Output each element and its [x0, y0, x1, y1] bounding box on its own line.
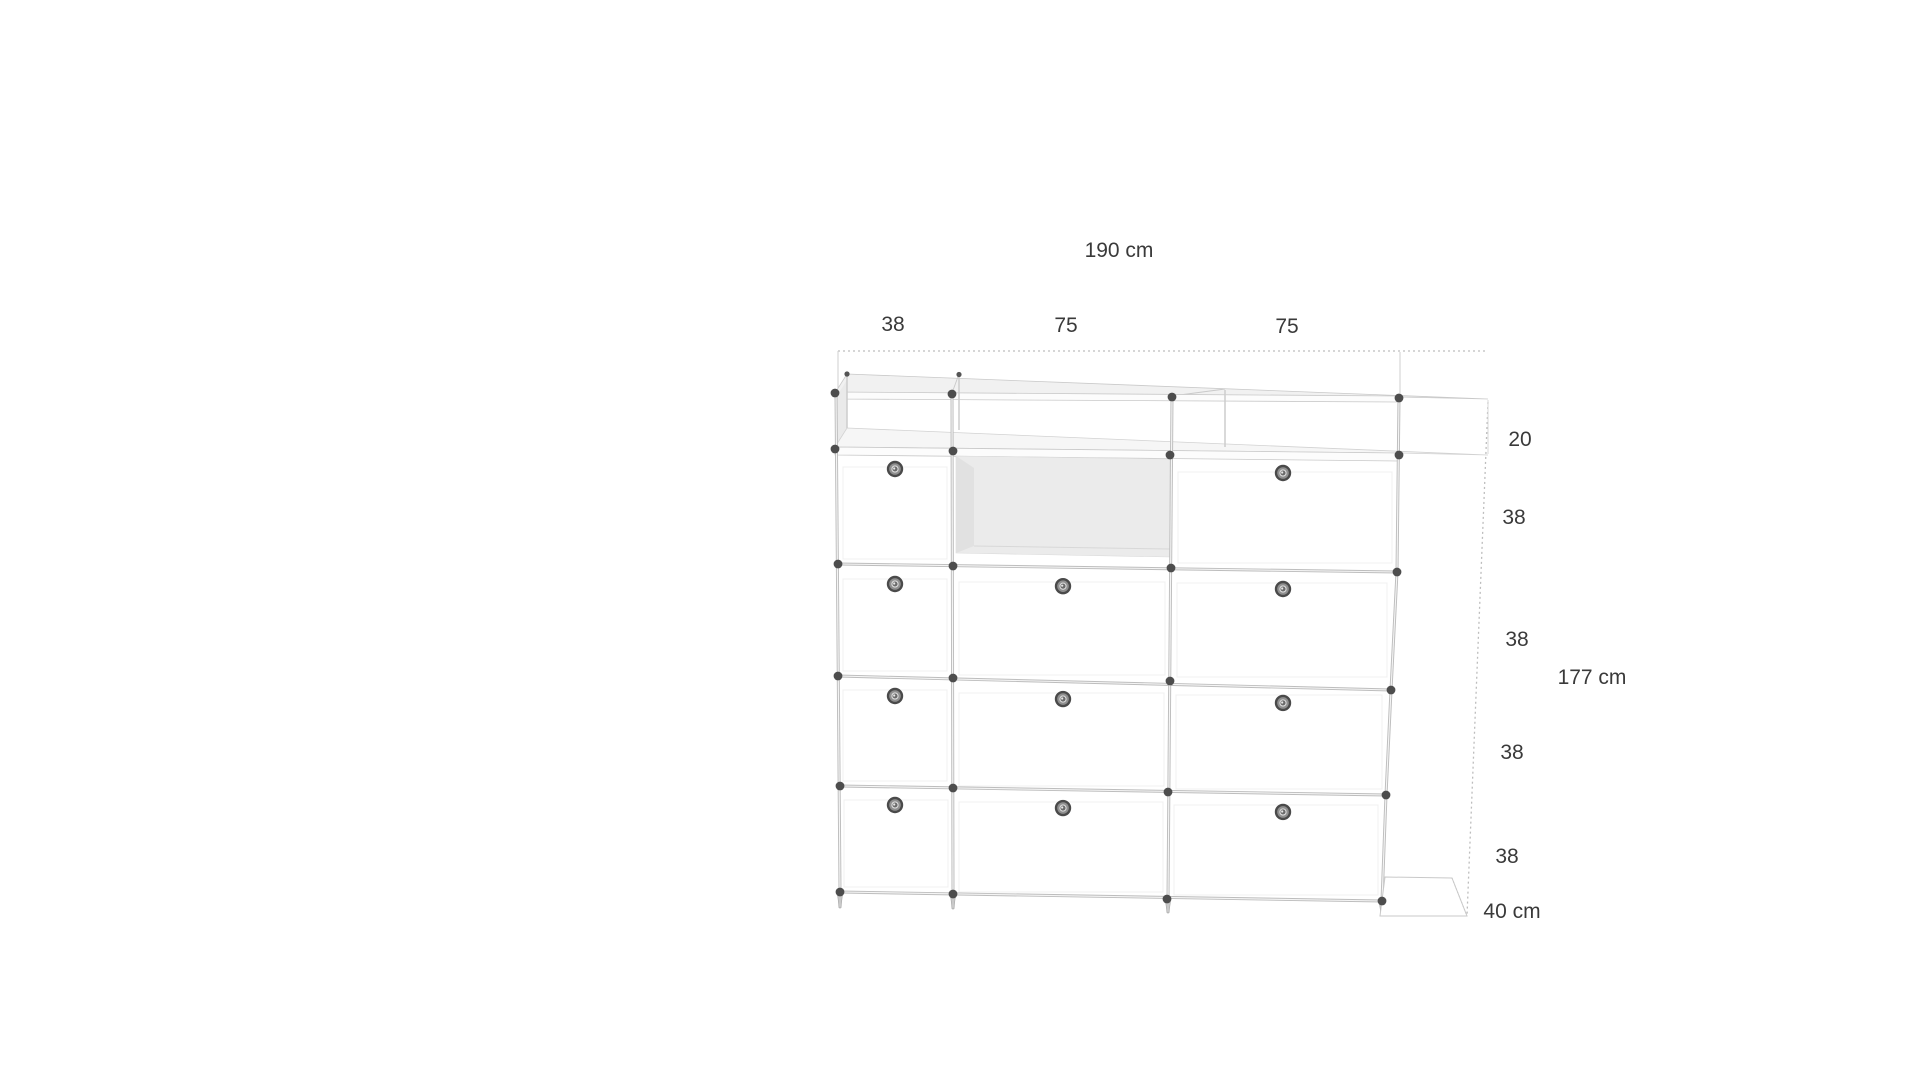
dimension-labels: 190 cm 38 75 75 20 38 38 38 38 177 cm 40…	[881, 239, 1626, 923]
row-height-label-shelf: 20	[1508, 428, 1531, 451]
lock-knob	[888, 798, 902, 812]
lock-knob	[1056, 692, 1070, 706]
lock-knob	[888, 577, 902, 591]
total-height-label: 177 cm	[1558, 666, 1627, 689]
lock-knob	[1056, 579, 1070, 593]
row-height-label-2: 38	[1505, 628, 1528, 651]
lock-knob	[1276, 805, 1290, 819]
lock-knob	[1276, 696, 1290, 710]
row-height-label-1: 38	[1502, 506, 1525, 529]
col-width-label-3: 75	[1275, 315, 1298, 338]
col-width-label-1: 38	[881, 313, 904, 336]
depth-footprint	[1380, 877, 1467, 916]
total-width-label: 190 cm	[1085, 239, 1154, 262]
lock-knob	[1056, 801, 1070, 815]
cabinet-dimension-drawing: 190 cm 38 75 75 20 38 38 38 38 177 cm 40…	[0, 0, 1920, 1080]
lock-knob	[1276, 466, 1290, 480]
lock-knob	[888, 462, 902, 476]
cabinet-top-shelf	[835, 371, 1488, 461]
row-height-label-4: 38	[1495, 845, 1518, 868]
configurator-canvas: 190 cm 38 75 75 20 38 38 38 38 177 cm 40…	[0, 0, 1920, 1080]
row-height-label-3: 38	[1500, 741, 1523, 764]
depth-label: 40 cm	[1483, 900, 1540, 923]
lock-knob	[1276, 582, 1290, 596]
open-compartment	[956, 456, 1170, 557]
height-dimension-line	[1467, 402, 1488, 916]
lock-knob	[888, 689, 902, 703]
frame-rails	[838, 564, 1397, 901]
col-width-label-2: 75	[1054, 314, 1077, 337]
